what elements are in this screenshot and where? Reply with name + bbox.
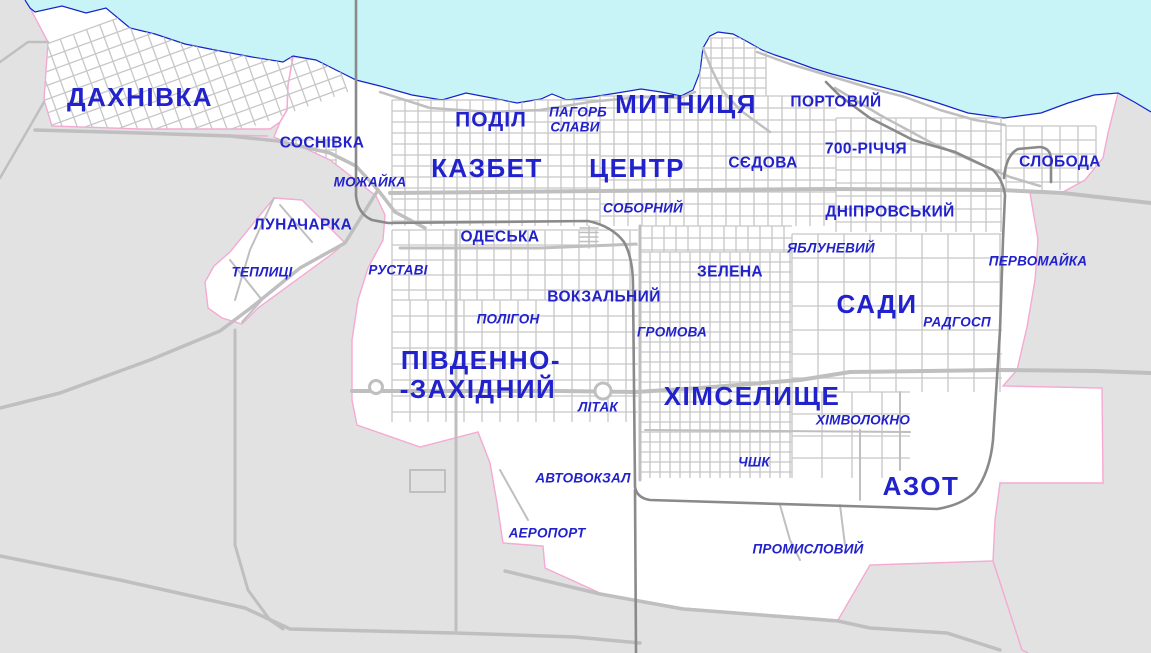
district-label: КАЗБЕТ bbox=[431, 153, 543, 183]
district-label: АЗОТ bbox=[883, 471, 960, 501]
district-label: ХІМВОЛОКНО bbox=[815, 413, 910, 428]
district-label: СЛОБОДА bbox=[1019, 154, 1101, 171]
district-label: ДАХНІВКА bbox=[67, 82, 213, 112]
roundabout bbox=[370, 381, 383, 394]
district-label: ПОЛІГОН bbox=[477, 312, 540, 327]
district-label: ПЕРВОМАЙКА bbox=[989, 253, 1087, 269]
district-label: ДНІПРОВСЬКИЙ bbox=[825, 203, 954, 221]
district-label: 700-РІЧЧЯ bbox=[825, 141, 907, 158]
district-label: СОБОРНИЙ bbox=[603, 200, 683, 216]
district-label: ЗЕЛЕНА bbox=[697, 264, 763, 281]
map-canvas: ДАХНІВКАМИТНИЦЯКАЗБЕТЦЕНТРПІВДЕННО--ЗАХІ… bbox=[0, 0, 1151, 653]
district-label: МОЖАЙКА bbox=[334, 174, 407, 190]
district-label: АЕРОПОРТ bbox=[508, 526, 587, 541]
district-label: ТЕПЛИЦІ bbox=[232, 265, 293, 280]
district-label: СЛАВИ bbox=[550, 120, 599, 135]
district-label: ЛУНАЧАРКА bbox=[254, 217, 352, 234]
district-label: СЄДОВА bbox=[728, 155, 797, 172]
district-label: ПОРТОВИЙ bbox=[790, 93, 881, 111]
city-districts-map: ДАХНІВКАМИТНИЦЯКАЗБЕТЦЕНТРПІВДЕННО--ЗАХІ… bbox=[0, 0, 1151, 653]
district-label: ПАГОРБ bbox=[549, 105, 607, 120]
district-label: ПРОМИСЛОВИЙ bbox=[752, 541, 863, 557]
district-label: РУСТАВІ bbox=[368, 263, 427, 278]
district-label: СОСНІВКА bbox=[280, 135, 365, 152]
district-label: ЛІТАК bbox=[577, 400, 619, 415]
district-label: ОДЕСЬКА bbox=[460, 229, 539, 246]
district-label: ЯБЛУНЕВИЙ bbox=[786, 240, 875, 256]
roundabout bbox=[595, 383, 611, 399]
railway-line bbox=[635, 490, 636, 653]
district-label: -ЗАХІДНИЙ bbox=[400, 374, 556, 404]
district-label: ПОДІЛ bbox=[455, 109, 527, 132]
district-label: МИТНИЦЯ bbox=[615, 89, 757, 119]
district-label: ГРОМОВА bbox=[637, 325, 707, 340]
district-label: ЦЕНТР bbox=[589, 153, 685, 183]
district-label: РАДГОСП bbox=[923, 315, 991, 330]
district-label: АВТОВОКЗАЛ bbox=[534, 471, 631, 486]
district-label: ХІМСЕЛИЩЕ bbox=[664, 381, 841, 411]
district-label: САДИ bbox=[836, 289, 917, 319]
district-label: ПІВДЕННО- bbox=[401, 345, 561, 375]
district-label: ЧШК bbox=[738, 455, 771, 470]
district-label: ВОКЗАЛЬНИЙ bbox=[547, 288, 660, 306]
